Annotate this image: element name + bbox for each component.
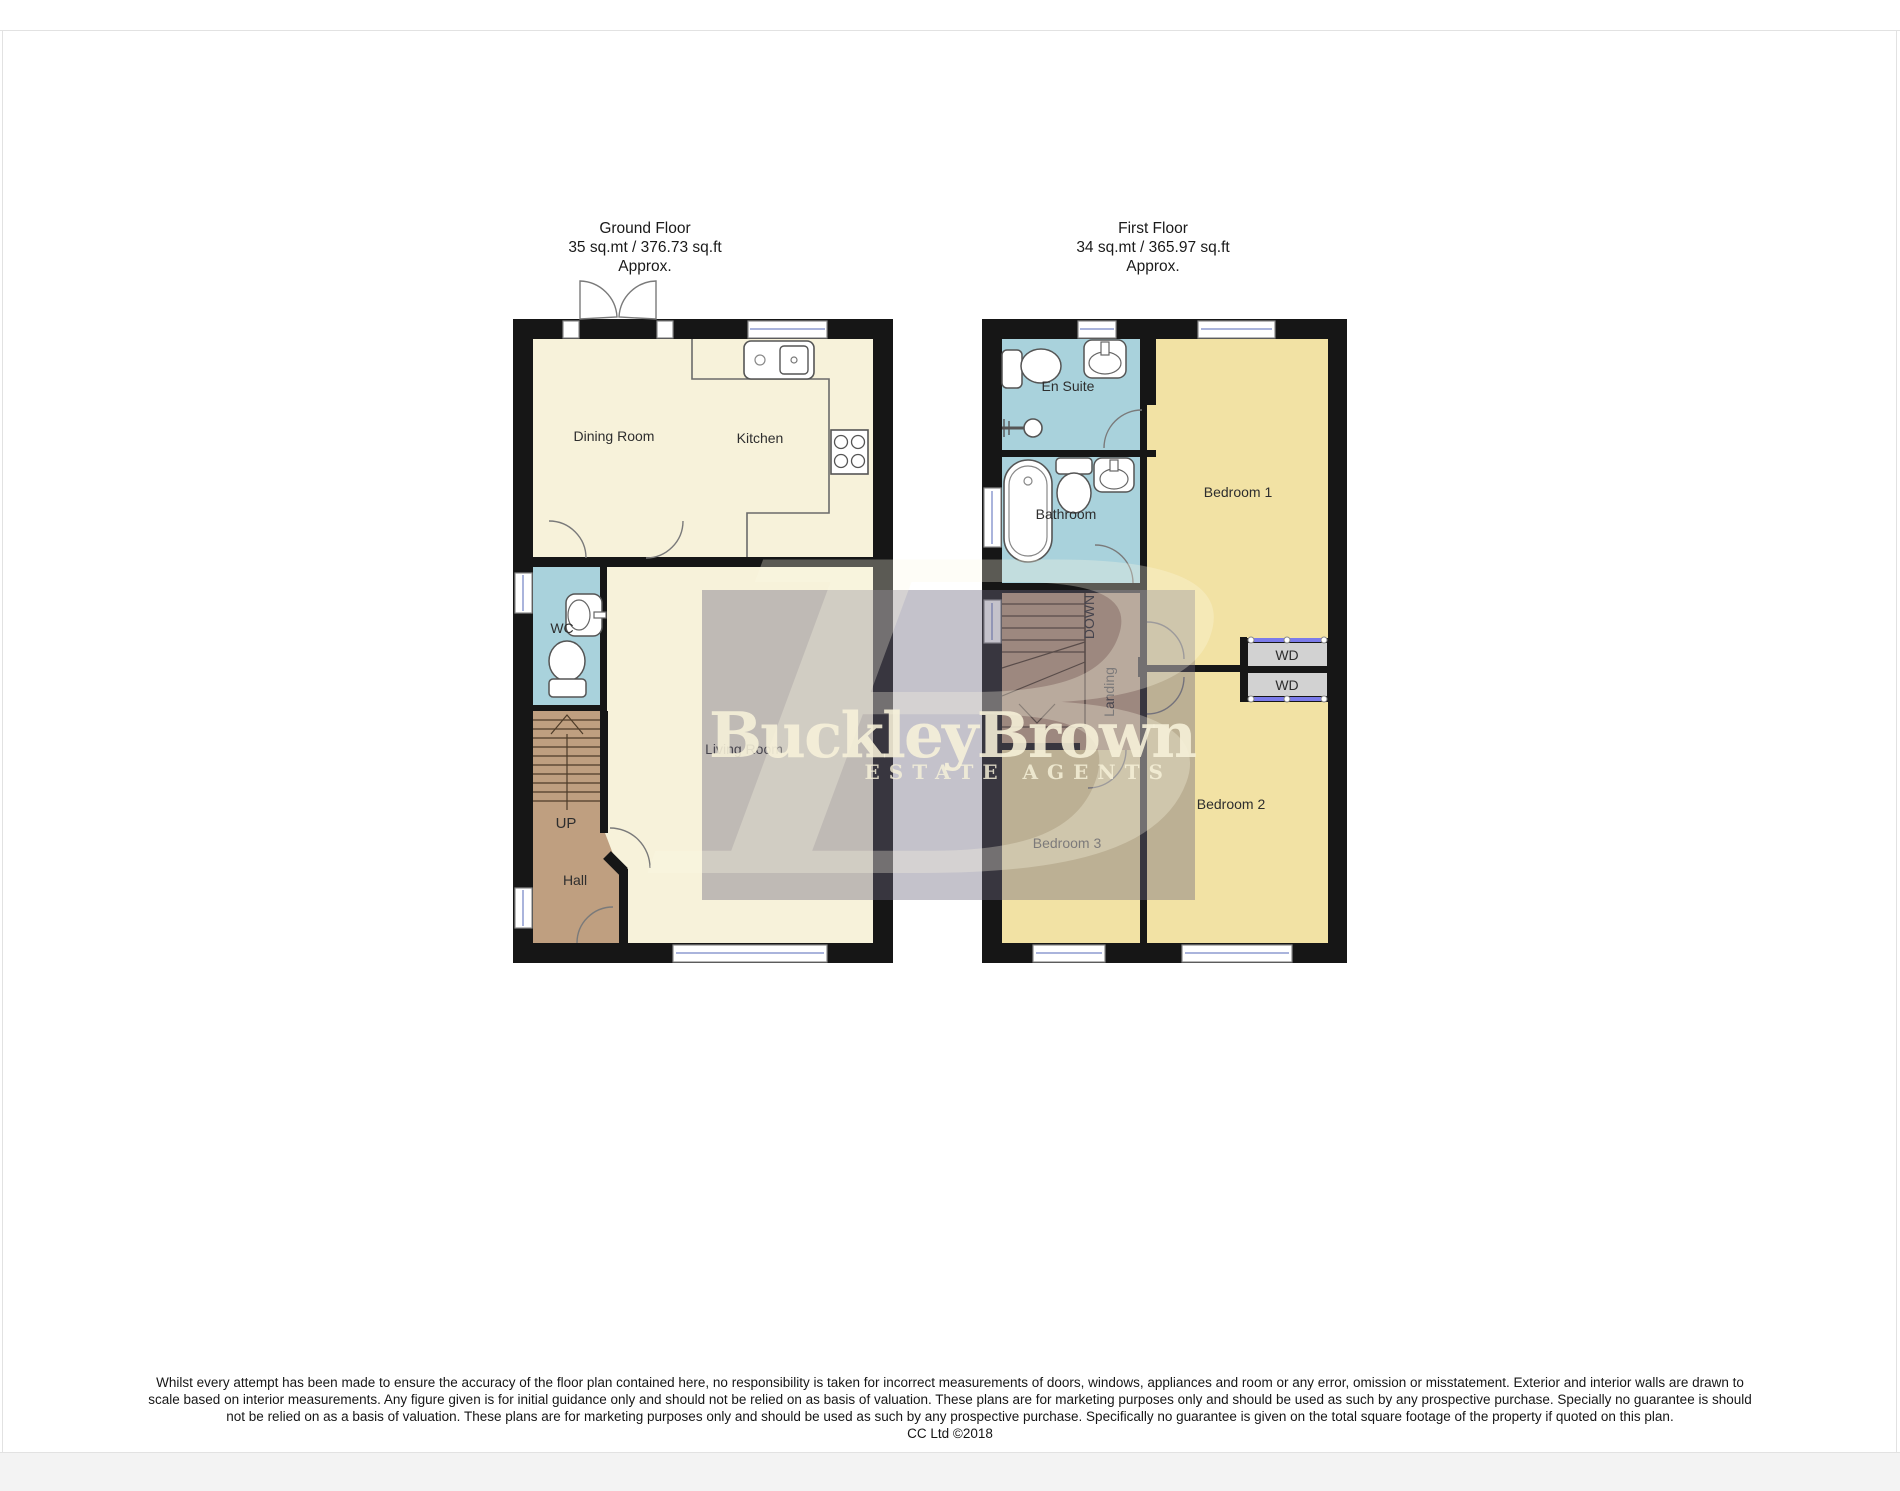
bathroom-toilet-icon	[1056, 458, 1092, 513]
window	[984, 488, 1001, 547]
disclaimer-line-2: scale based on interior measurements. An…	[0, 1391, 1900, 1408]
window	[1182, 945, 1292, 962]
kitchen-sink-icon	[744, 341, 814, 379]
door-sidelight	[657, 321, 673, 338]
kitchen-label: Kitchen	[737, 430, 784, 446]
disclaimer-copyright: CC Ltd ©2018	[0, 1425, 1900, 1442]
window	[1078, 321, 1116, 338]
wc-toilet-icon	[549, 641, 586, 697]
bathroom-sink-icon	[1094, 458, 1134, 492]
wc-label: WC	[550, 620, 573, 636]
bathroom-label: Bathroom	[1036, 506, 1097, 522]
ensuite-sink-icon	[1084, 340, 1126, 378]
en-suite-label: En Suite	[1042, 378, 1095, 394]
wd-2-label: WD	[1275, 677, 1298, 693]
window	[1033, 945, 1105, 962]
dining-room-label: Dining Room	[574, 428, 655, 444]
wd-1-label: WD	[1275, 647, 1298, 663]
disclaimer-line-3: not be relied on as a basis of valuation…	[0, 1408, 1900, 1425]
door-sidelight	[563, 321, 579, 338]
window	[1198, 321, 1275, 338]
disclaimer: Whilst every attempt has been made to en…	[0, 1374, 1900, 1442]
watermark-tagline: ESTATE AGENTS	[702, 760, 1172, 784]
window	[748, 321, 827, 338]
window	[515, 888, 532, 928]
french-doors	[580, 281, 656, 319]
hall-label: Hall	[563, 872, 587, 888]
up-label: UP	[556, 815, 577, 832]
dining-kitchen-floor	[533, 339, 873, 557]
floorplan-page: Ground Floor 35 sq.mt / 376.73 sq.ft App…	[0, 0, 1900, 1491]
window	[673, 945, 827, 962]
bedroom-2-label: Bedroom 2	[1197, 796, 1266, 812]
disclaimer-line-1: Whilst every attempt has been made to en…	[0, 1374, 1900, 1391]
bedroom-1-label: Bedroom 1	[1204, 484, 1273, 500]
window	[515, 573, 532, 613]
hob-icon	[831, 430, 868, 474]
